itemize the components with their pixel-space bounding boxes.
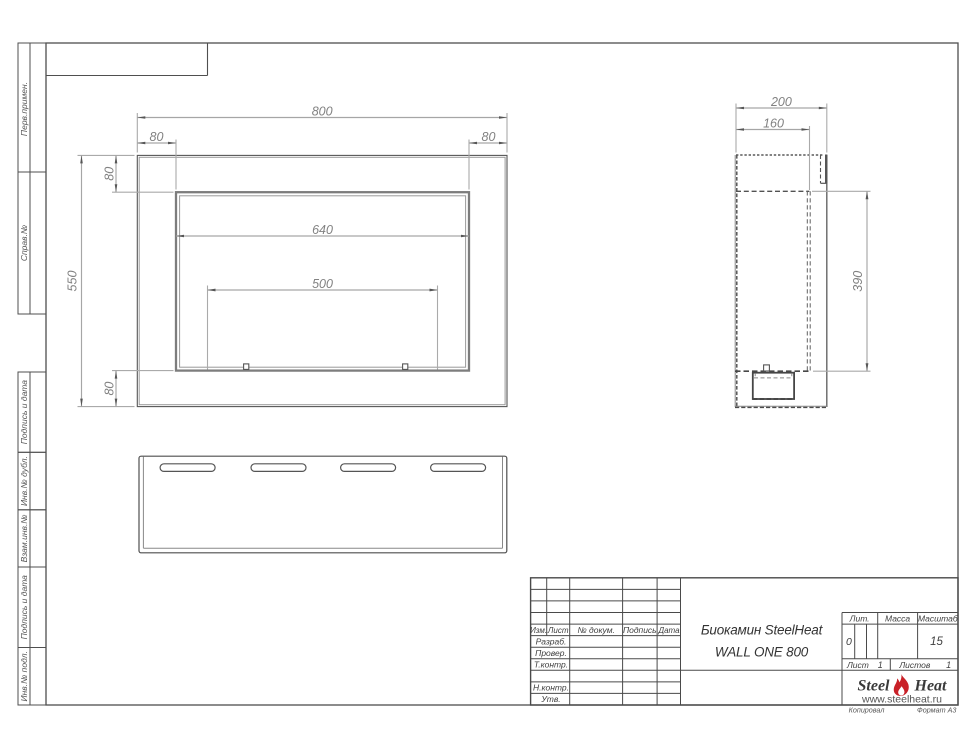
svg-text:200: 200 [770,95,792,109]
svg-text:160: 160 [763,117,784,131]
svg-text:80: 80 [103,382,117,396]
svg-text:Масштаб: Масштаб [918,613,959,623]
svg-text:№ докум.: № докум. [577,625,614,635]
svg-text:Утв.: Утв. [540,694,560,704]
svg-text:Провер.: Провер. [535,648,567,658]
svg-text:15: 15 [930,636,943,648]
svg-text:640: 640 [312,223,333,237]
svg-text:Справ.№: Справ.№ [19,225,29,261]
svg-text:Подпись: Подпись [623,625,657,635]
svg-text:Дата: Дата [657,626,680,635]
svg-text:Инв.№ подл.: Инв.№ подл. [19,651,29,701]
svg-text:1: 1 [946,660,951,670]
svg-text:Т.контр.: Т.контр. [534,659,568,669]
svg-text:WALL ONE 800: WALL ONE 800 [715,645,809,660]
svg-text:Биокамин SteelHeat: Биокамин SteelHeat [701,623,824,638]
svg-text:Steel: Steel [858,678,891,695]
svg-text:Разраб.: Разраб. [536,636,567,646]
svg-text:Копировал: Копировал [849,706,885,715]
svg-text:Н.контр.: Н.контр. [533,683,569,693]
svg-text:Листов: Листов [898,660,931,670]
svg-text:390: 390 [851,271,865,292]
svg-text:Лит.: Лит. [849,613,870,623]
svg-text:Heat: Heat [914,678,948,695]
svg-text:Подпись и дата: Подпись и дата [19,380,29,445]
svg-text:www.steelheat.ru: www.steelheat.ru [861,694,942,706]
svg-text:550: 550 [66,271,80,292]
svg-text:Инв.№ дубл.: Инв.№ дубл. [19,456,29,506]
svg-text:Лист: Лист [547,626,569,635]
svg-text:Масса: Масса [885,613,910,623]
svg-text:Лист: Лист [846,660,869,670]
svg-text:80: 80 [103,167,117,181]
svg-text:Взам.инв.№: Взам.инв.№ [19,514,29,562]
svg-text:0: 0 [846,636,852,648]
svg-text:80: 80 [150,130,164,144]
svg-text:800: 800 [312,105,333,119]
svg-text:Изм.: Изм. [530,626,547,635]
svg-text:1: 1 [878,660,883,670]
svg-text:Формат А3: Формат А3 [917,706,956,715]
svg-text:Перв.примен.: Перв.примен. [19,82,29,136]
svg-text:Подпись и дата: Подпись и дата [19,575,29,640]
svg-text:500: 500 [312,277,333,291]
svg-text:80: 80 [482,130,496,144]
